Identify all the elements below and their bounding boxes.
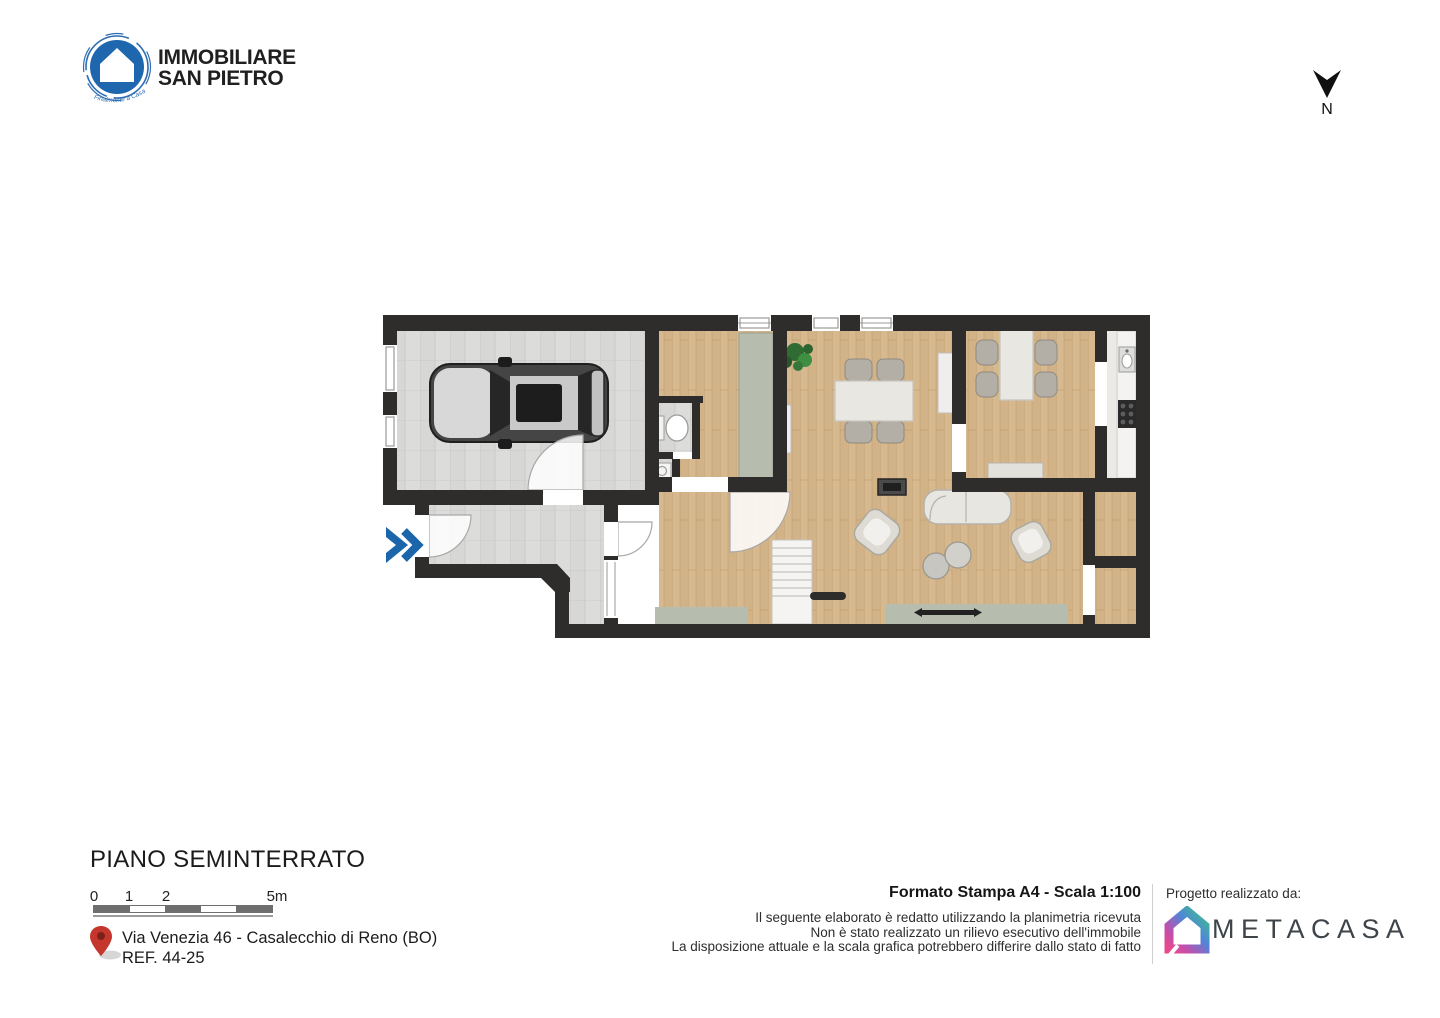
garage-door-gap (543, 490, 583, 505)
toilet-icon (656, 415, 688, 441)
scale-label-1: 1 (125, 888, 133, 905)
metacasa-wordmark: METACASA (1212, 914, 1411, 945)
credits-label: Progetto realizzato da: (1166, 886, 1301, 901)
disclaimer-line: Il seguente elaborato è redatto utilizza… (640, 911, 1141, 926)
rug-left (655, 607, 748, 626)
disclaimer-line: La disposizione attuale e la scala grafi… (640, 940, 1141, 955)
scale-label-0: 0 (90, 888, 98, 905)
office-table (1000, 326, 1033, 400)
pouf (945, 542, 971, 568)
address-ref: REF. 44-25 (122, 948, 437, 968)
bathroom-door-gap (673, 452, 692, 459)
floor-plan (370, 310, 1160, 645)
scale-label-2: 2 (162, 888, 170, 905)
print-format: Formato Stampa A4 - Scala 1:100 (640, 884, 1141, 902)
storage-door-gap (1083, 565, 1095, 615)
metacasa-house-icon (1164, 906, 1210, 956)
print-info: Formato Stampa A4 - Scala 1:100 Il segue… (640, 884, 1141, 955)
north-indicator: N (1303, 62, 1351, 116)
corridor-glazing (604, 560, 618, 618)
agency-name-line2: SAN PIETRO (158, 68, 296, 89)
tv-screen (883, 483, 901, 491)
agency-name-line1: IMMOBILIARE (158, 47, 296, 68)
agency-logo-icon: Finalmente a Casa (80, 30, 156, 120)
page-title: PIANO SEMINTERRATO (90, 846, 365, 874)
kitchen-door-gap (1095, 362, 1107, 426)
office-sideboard (988, 463, 1043, 478)
window (383, 345, 397, 392)
window (860, 315, 893, 331)
scale-bar (93, 905, 275, 917)
corridor-door-arc (618, 522, 652, 556)
disclaimer-line: Non è stato realizzato un rilievo esecut… (640, 926, 1141, 941)
stair-handrail (810, 592, 846, 600)
stove-icon (1118, 400, 1136, 428)
entrance-arrow-icon (386, 527, 418, 563)
scale-label-5m: 5m (267, 888, 288, 905)
dining-table (835, 381, 913, 421)
sofa (924, 490, 1011, 524)
agency-name: IMMOBILIARE SAN PIETRO (158, 47, 296, 89)
address-line: Via Venezia 46 - Casalecchio di Reno (BO… (122, 928, 437, 948)
wardrobe (739, 333, 773, 490)
corridor-door-gap (604, 522, 618, 556)
kitchen-sink-icon (1119, 347, 1135, 372)
north-arrow-icon: N (1303, 62, 1351, 116)
footer-divider (1152, 884, 1153, 964)
bench-icon (920, 610, 976, 615)
scale-bar-labels: 0 1 2 5m (0, 888, 400, 904)
north-arrow (1313, 70, 1341, 98)
property-address: Via Venezia 46 - Casalecchio di Reno (BO… (122, 928, 437, 968)
window (383, 415, 397, 448)
dining-sideboard (938, 353, 953, 413)
north-label: N (1321, 101, 1333, 116)
hall-door-gap (672, 477, 728, 492)
location-pin-icon (90, 925, 116, 959)
window (738, 315, 771, 331)
window (812, 315, 840, 331)
office-door-gap (952, 424, 966, 472)
